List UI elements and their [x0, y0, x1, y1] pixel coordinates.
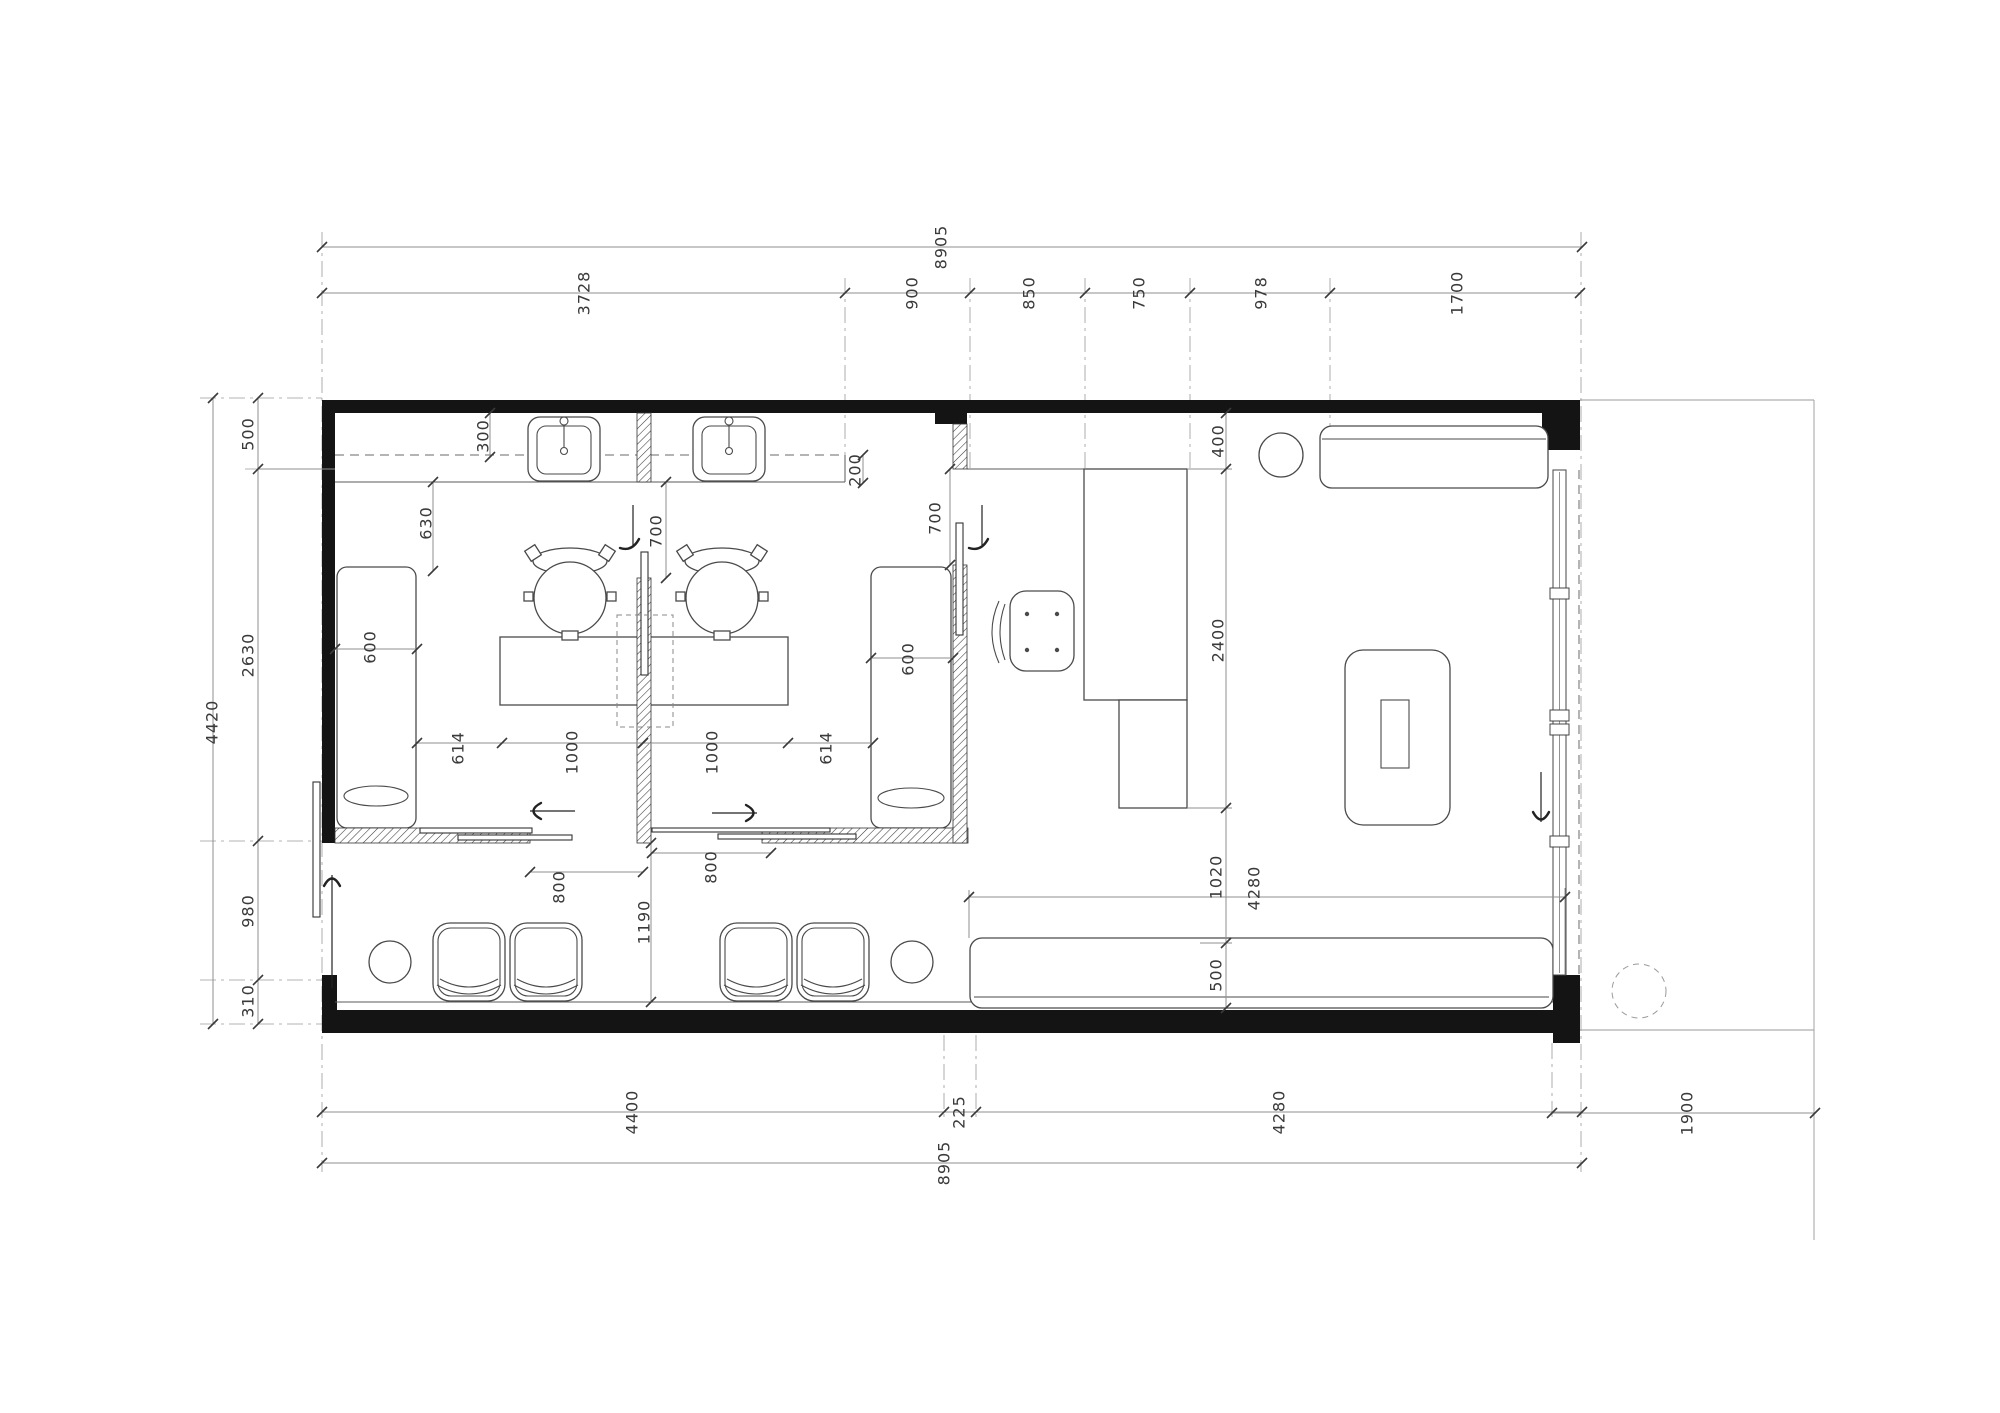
- stool: [1259, 433, 1303, 477]
- dim-slide-room2: 800: [702, 850, 721, 884]
- door-track-room2-bottom: [652, 828, 830, 832]
- window-mullion: [1550, 588, 1569, 599]
- dim-desk-gap-right: 614: [817, 731, 836, 765]
- door-track-room1-bottom: [420, 828, 532, 833]
- bottom-wall: [337, 1010, 1553, 1033]
- styling-chair-room1: [524, 545, 616, 640]
- door-leaf-room1: [641, 552, 648, 675]
- window-mullion: [1550, 710, 1569, 721]
- dim-left-seg-2: 2630: [239, 633, 258, 678]
- site-boundary: [1580, 400, 1814, 1240]
- door-leaf-room2-bottom: [718, 834, 856, 839]
- dim-desk-gap-left: 614: [449, 731, 468, 765]
- chair-backrest: [992, 601, 999, 663]
- dim-counter-depth: 300: [474, 419, 493, 453]
- dim-bottom-overall: 8905: [935, 1141, 954, 1186]
- waiting-chair: [433, 923, 505, 1001]
- dim-couch1-width: 600: [361, 630, 380, 664]
- dim-top-seg-2: 900: [903, 276, 922, 310]
- dim-corridor: 1190: [635, 900, 654, 945]
- chair-seat: [1010, 591, 1074, 671]
- door-leaf-entry: [313, 782, 320, 917]
- door-leaf-room1-bottom: [458, 835, 572, 840]
- massage-couch-room1: [337, 567, 416, 828]
- window-mullion: [1550, 724, 1569, 735]
- dim-bench-depth: 500: [1207, 958, 1226, 992]
- arrow-down-icon: [969, 539, 988, 549]
- floor-plan-page: 8905 3728 900 850 750 978 1700 4420 500 …: [0, 0, 2000, 1413]
- arrow-down-icon: [620, 539, 639, 549]
- waiting-chair: [720, 923, 792, 1001]
- dim-wall-to-couch: 630: [417, 506, 436, 540]
- left-wall: [322, 400, 335, 843]
- dim-couch2-width: 600: [899, 642, 918, 676]
- dim-top-seg-6: 1700: [1448, 271, 1467, 316]
- site-column-dashed-circle: [1612, 964, 1666, 1018]
- dim-bottom-seg-3: 4280: [1270, 1090, 1289, 1135]
- sink-room1: [528, 417, 600, 481]
- waiting-chair: [510, 923, 582, 1001]
- side-table: [891, 941, 933, 983]
- dim-left-seg-3: 980: [239, 894, 258, 928]
- window-mullion: [1550, 836, 1569, 847]
- dim-slide-room1: 800: [550, 870, 569, 904]
- styling-chair-room2: [676, 545, 768, 640]
- dim-top-seg-3: 850: [1020, 276, 1039, 310]
- dim-right-offset: 400: [1209, 424, 1228, 458]
- top-bench: [1320, 426, 1548, 488]
- partition-room1-room2-pier: [637, 413, 651, 482]
- sink-room2: [693, 417, 765, 481]
- dim-desk-seg-2: 1000: [703, 730, 722, 775]
- reception-office-chair: [992, 591, 1074, 671]
- coffee-table: [1345, 650, 1450, 825]
- dim-counter-offset: 200: [846, 453, 865, 487]
- waiting-chair: [797, 923, 869, 1001]
- door-leaf-room2: [956, 523, 963, 635]
- dim-bottom-seg-1: 4400: [623, 1090, 642, 1135]
- bottom-right-corner-wall: [1553, 975, 1580, 1043]
- top-wall: [322, 400, 1580, 413]
- dim-reception-desk: 2400: [1209, 618, 1228, 663]
- dim-site-right: 1900: [1678, 1091, 1697, 1136]
- dim-top-seg-5: 978: [1252, 276, 1271, 310]
- reception-desk: [1084, 469, 1187, 808]
- dim-bottom-seg-2: 225: [950, 1095, 969, 1129]
- bottom-bench: [970, 938, 1553, 1008]
- dim-left-seg-4: 310: [239, 984, 258, 1018]
- dim-left-overall: 4420: [203, 700, 222, 745]
- dim-door-room1: 700: [647, 514, 666, 548]
- side-table: [369, 941, 411, 983]
- lounge-room-furniture: [970, 426, 1553, 1008]
- partition-room2-reception-pier: [953, 424, 967, 469]
- dim-top-seg-1: 3728: [575, 271, 594, 316]
- dim-top-overall: 8905: [932, 225, 951, 270]
- dim-top-seg-4: 750: [1130, 276, 1149, 310]
- dim-left-seg-1: 500: [239, 417, 258, 451]
- dim-door-room2: 700: [926, 501, 945, 535]
- chair-seat: [686, 562, 758, 634]
- dim-desk-seg-1: 1000: [563, 730, 582, 775]
- chair-seat: [534, 562, 606, 634]
- massage-couch-room2: [871, 567, 951, 828]
- floor-plan-drawing: 8905 3728 900 850 750 978 1700 4420 500 …: [0, 0, 2000, 1413]
- bottom-left-wall-stub: [322, 975, 337, 1033]
- dim-desk-to-bench: 1020: [1207, 855, 1226, 900]
- dim-bench-length: 4280: [1245, 866, 1264, 911]
- top-wall-step: [935, 413, 967, 424]
